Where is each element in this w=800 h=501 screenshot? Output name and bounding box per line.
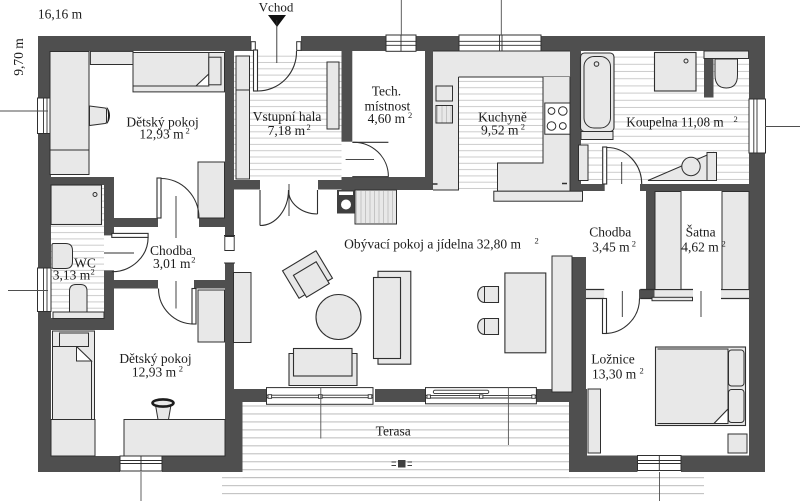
svg-text:Terasa: Terasa bbox=[376, 424, 411, 439]
svg-text:Šatna: Šatna bbox=[686, 225, 716, 240]
svg-text:16,16 m: 16,16 m bbox=[38, 7, 83, 22]
svg-text:4,60 m: 4,60 m bbox=[368, 111, 406, 126]
svg-text:Vchod: Vchod bbox=[259, 0, 294, 15]
svg-text:3,45 m: 3,45 m bbox=[592, 240, 630, 255]
svg-text:Chodba: Chodba bbox=[589, 225, 631, 240]
svg-text:Koupelna 11,08 m: Koupelna 11,08 m bbox=[626, 115, 724, 130]
svg-text:2: 2 bbox=[640, 366, 644, 376]
svg-text:3,13 m: 3,13 m bbox=[53, 268, 91, 283]
svg-text:2: 2 bbox=[179, 364, 183, 374]
svg-text:2: 2 bbox=[186, 126, 190, 136]
svg-text:Obývací pokoj a jídelna 32,80: Obývací pokoj a jídelna 32,80 m bbox=[344, 237, 521, 252]
svg-text:2: 2 bbox=[521, 122, 525, 132]
svg-text:7,18 m: 7,18 m bbox=[268, 123, 306, 138]
svg-text:2: 2 bbox=[632, 239, 636, 249]
svg-text:2: 2 bbox=[408, 110, 412, 120]
svg-text:4,62 m: 4,62 m bbox=[681, 240, 719, 255]
svg-text:2: 2 bbox=[535, 236, 539, 246]
svg-text:9,52 m: 9,52 m bbox=[481, 123, 519, 138]
svg-text:2: 2 bbox=[307, 122, 311, 132]
svg-text:9,70 m: 9,70 m bbox=[11, 38, 26, 76]
svg-text:Tech.: Tech. bbox=[372, 84, 401, 99]
svg-text:12,93 m: 12,93 m bbox=[139, 127, 184, 142]
svg-text:2: 2 bbox=[722, 239, 726, 249]
svg-text:13,30 m: 13,30 m bbox=[592, 367, 637, 382]
svg-text:12,93 m: 12,93 m bbox=[132, 365, 177, 380]
svg-text:Vstupní hala: Vstupní hala bbox=[253, 109, 322, 124]
svg-text:2: 2 bbox=[734, 114, 738, 124]
svg-text:2: 2 bbox=[191, 255, 195, 265]
svg-text:3,01 m: 3,01 m bbox=[153, 256, 191, 271]
svg-text:Ložnice: Ložnice bbox=[591, 352, 634, 367]
svg-text:2: 2 bbox=[91, 267, 95, 277]
